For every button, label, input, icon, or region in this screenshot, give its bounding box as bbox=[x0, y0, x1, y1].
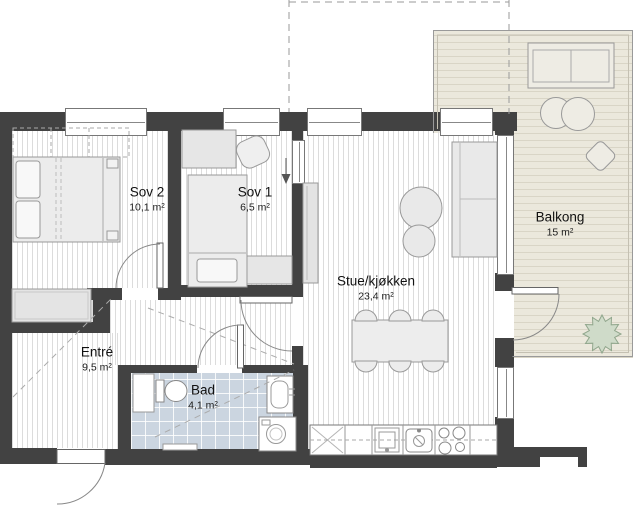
wall-segment bbox=[292, 131, 303, 140]
window bbox=[440, 108, 493, 136]
floor-sov2-nook bbox=[12, 288, 93, 322]
wall-segment bbox=[145, 112, 223, 131]
room-name: Sov 1 bbox=[238, 183, 273, 201]
door-opening bbox=[495, 291, 514, 338]
room-label-entre: Entré 9,5 m² bbox=[81, 343, 113, 374]
wall-segment bbox=[87, 288, 122, 300]
wall-segment bbox=[0, 322, 110, 333]
sliding-door-opening bbox=[292, 140, 305, 184]
wall-segment bbox=[0, 448, 57, 464]
wall-segment bbox=[310, 454, 497, 468]
room-label-sov2: Sov 2 10,1 m² bbox=[129, 183, 165, 214]
room-label-stue: Stue/kjøkken 23,4 m² bbox=[337, 272, 415, 303]
room-name: Balkong bbox=[536, 208, 585, 226]
room-name: Bad bbox=[188, 381, 218, 399]
floor-plan: Sov 2 10,1 m² Sov 1 6,5 m² Stue/kjøkken … bbox=[0, 0, 636, 505]
wall-segment bbox=[168, 285, 303, 297]
door-opening bbox=[197, 365, 242, 373]
room-area: 23,4 m² bbox=[337, 290, 415, 304]
wall-notch bbox=[540, 457, 578, 467]
room-area: 15 m² bbox=[536, 226, 585, 240]
window bbox=[307, 108, 362, 136]
floor-sov1 bbox=[181, 131, 292, 285]
wall-segment bbox=[495, 338, 514, 367]
wall-segment bbox=[168, 131, 181, 297]
window bbox=[65, 108, 147, 136]
wall-segment bbox=[118, 365, 131, 457]
wall-segment bbox=[158, 288, 181, 300]
door-opening bbox=[122, 288, 158, 300]
wall-segment bbox=[495, 273, 514, 291]
wall-segment bbox=[360, 112, 440, 131]
room-name: Entré bbox=[81, 343, 113, 361]
room-label-sov1: Sov 1 6,5 m² bbox=[238, 183, 273, 214]
door-opening bbox=[292, 297, 303, 346]
wall-segment bbox=[0, 112, 12, 464]
wall-segment bbox=[293, 365, 308, 457]
room-name: Sov 2 bbox=[129, 183, 165, 201]
floor-corridor bbox=[110, 297, 292, 365]
room-label-balkong: Balkong 15 m² bbox=[536, 208, 585, 239]
wall-segment bbox=[105, 449, 310, 465]
wall-segment bbox=[278, 112, 307, 131]
wall-segment bbox=[292, 182, 303, 297]
room-name: Stue/kjøkken bbox=[337, 272, 415, 290]
room-label-bad: Bad 4,1 m² bbox=[188, 381, 218, 412]
room-area: 10,1 m² bbox=[129, 201, 165, 215]
window bbox=[223, 108, 280, 136]
door-opening bbox=[57, 448, 105, 464]
room-area: 4,1 m² bbox=[188, 399, 218, 413]
room-area: 9,5 m² bbox=[81, 361, 113, 375]
room-area: 6,5 m² bbox=[238, 201, 273, 215]
wall-segment bbox=[495, 115, 514, 135]
window bbox=[497, 135, 514, 275]
window bbox=[497, 367, 514, 419]
